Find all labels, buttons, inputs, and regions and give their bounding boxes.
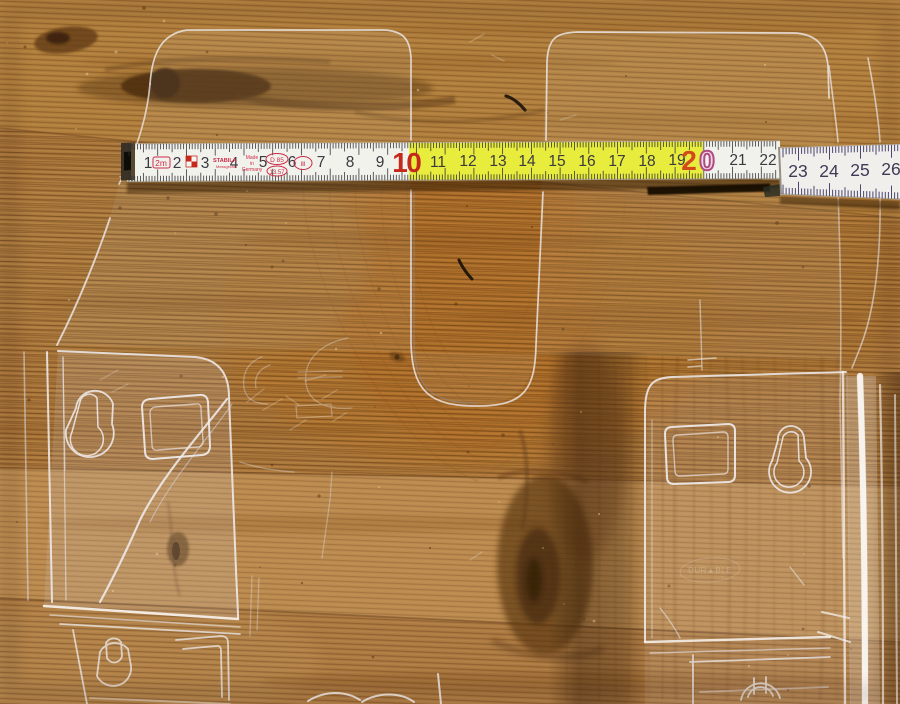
svg-text:11: 11: [430, 154, 446, 171]
svg-text:25: 25: [850, 160, 869, 180]
svg-text:D 85: D 85: [270, 157, 284, 164]
svg-text:22: 22: [759, 152, 776, 169]
svg-text:0: 0: [406, 147, 422, 178]
svg-text:23: 23: [788, 161, 807, 181]
svg-text:Germany: Germany: [242, 167, 263, 173]
svg-text:17: 17: [608, 153, 625, 170]
svg-text:7: 7: [317, 154, 326, 171]
svg-text:15: 15: [548, 153, 565, 170]
svg-text:2: 2: [681, 145, 697, 176]
svg-text:26: 26: [881, 159, 900, 179]
svg-text:2m: 2m: [155, 158, 167, 168]
svg-text:13.57: 13.57: [269, 170, 285, 176]
svg-text:6: 6: [288, 154, 297, 171]
svg-text:9: 9: [376, 154, 385, 171]
svg-text:Ⅲ: Ⅲ: [301, 161, 306, 168]
svg-text:1: 1: [144, 155, 153, 172]
svg-text:8: 8: [346, 154, 355, 171]
svg-text:21: 21: [729, 152, 746, 169]
svg-text:0: 0: [699, 145, 715, 176]
svg-text:2: 2: [173, 155, 182, 172]
svg-text:16: 16: [578, 153, 595, 170]
svg-text:24: 24: [819, 161, 839, 181]
svg-text:Messgeräte: Messgeräte: [216, 164, 238, 169]
svg-text:3: 3: [201, 155, 210, 172]
svg-text:14: 14: [518, 153, 536, 170]
svg-text:13: 13: [489, 153, 506, 170]
svg-text:12: 12: [459, 153, 476, 170]
svg-text:18: 18: [638, 153, 655, 170]
